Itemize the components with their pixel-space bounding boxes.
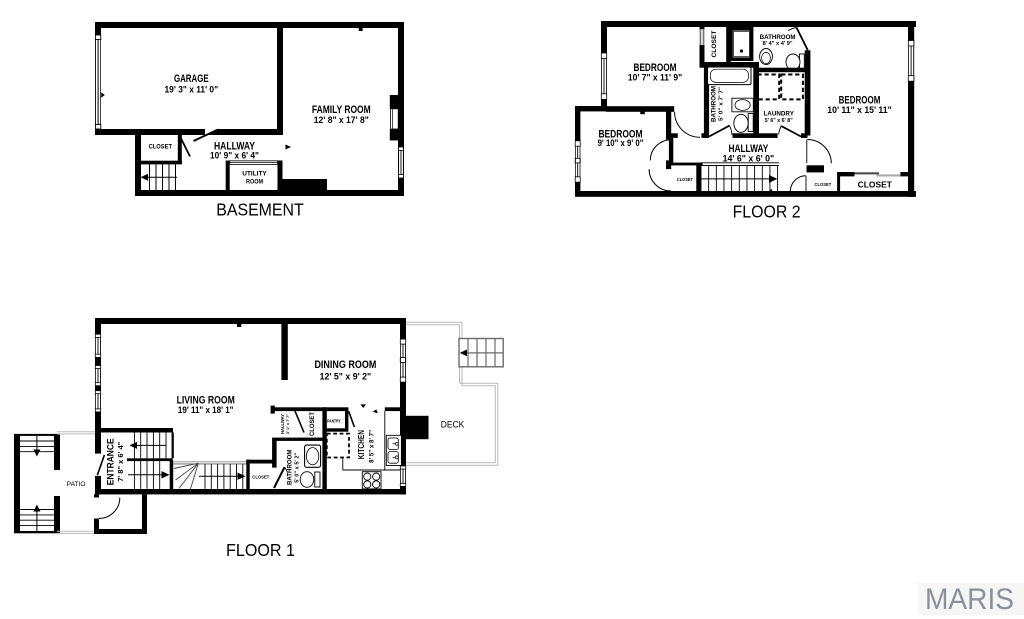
svg-text:DECK: DECK	[441, 420, 465, 431]
svg-text:FLOOR 2: FLOOR 2	[733, 202, 801, 222]
svg-text:BASEMENT: BASEMENT	[216, 200, 304, 220]
svg-text:12' 8" x 17' 8": 12' 8" x 17' 8"	[314, 115, 369, 125]
svg-text:3' 1" x 7' 7": 3' 1" x 7' 7"	[286, 414, 290, 434]
svg-text:ROOM: ROOM	[246, 179, 263, 186]
svg-text:CLOSET: CLOSET	[310, 412, 316, 436]
svg-text:BATHROOM: BATHROOM	[711, 86, 718, 122]
svg-text:5' 0" x 5' 2": 5' 0" x 5' 2"	[295, 452, 301, 482]
svg-text:ENTRANCE: ENTRANCE	[106, 438, 116, 485]
svg-text:MARIS: MARIS	[925, 583, 1014, 616]
svg-text:CLOSET: CLOSET	[858, 180, 892, 189]
svg-text:19' 11" x 18' 1": 19' 11" x 18' 1"	[178, 405, 234, 415]
svg-text:LAUNDRY: LAUNDRY	[763, 110, 794, 117]
svg-text:CLOSET: CLOSET	[149, 144, 173, 151]
svg-text:KITCHEN: KITCHEN	[357, 430, 366, 460]
svg-text:5' 0" x 7' 7": 5' 0" x 7' 7"	[719, 86, 725, 121]
svg-text:PANTRY: PANTRY	[327, 418, 341, 424]
svg-text:FAMILY ROOM: FAMILY ROOM	[312, 104, 371, 116]
svg-text:BATHROOM: BATHROOM	[760, 35, 796, 41]
svg-text:GARAGE: GARAGE	[174, 73, 209, 85]
svg-text:5' 6" x 6' 8": 5' 6" x 6' 8"	[765, 118, 793, 124]
svg-text:12' 5" x 9' 2": 12' 5" x 9' 2"	[320, 371, 372, 381]
svg-text:BATHROOM: BATHROOM	[287, 449, 294, 485]
svg-text:HALLWAY: HALLWAY	[280, 414, 285, 434]
svg-text:10' 11" x 15' 11": 10' 11" x 15' 11"	[827, 105, 891, 115]
svg-text:CLOSET: CLOSET	[677, 177, 693, 183]
svg-text:8' 4" x 4' 9": 8' 4" x 4' 9"	[763, 41, 793, 47]
svg-text:10' 9" x 6' 4": 10' 9" x 6' 4"	[210, 151, 259, 161]
svg-text:PATIO: PATIO	[67, 482, 86, 488]
svg-text:DINING ROOM: DINING ROOM	[314, 359, 376, 371]
svg-text:CLOSET: CLOSET	[711, 30, 718, 57]
svg-text:9' 10" x 9' 0": 9' 10" x 9' 0"	[598, 138, 644, 148]
svg-text:CLOSET: CLOSET	[815, 182, 832, 188]
svg-text:UTILITY: UTILITY	[242, 171, 267, 178]
svg-text:14' 6" x 6' 0": 14' 6" x 6' 0"	[723, 153, 775, 163]
svg-text:CLOSET: CLOSET	[252, 474, 269, 480]
svg-text:FLOOR 1: FLOOR 1	[226, 540, 295, 560]
svg-text:10' 7" x 11' 9": 10' 7" x 11' 9"	[628, 72, 682, 82]
svg-text:19' 3" x 11' 0": 19' 3" x 11' 0"	[165, 85, 219, 95]
svg-text:7' 8" x 6' 4": 7' 8" x 6' 4"	[116, 441, 125, 481]
svg-text:8' 5" x 8' 7": 8' 5" x 8' 7"	[369, 430, 376, 463]
